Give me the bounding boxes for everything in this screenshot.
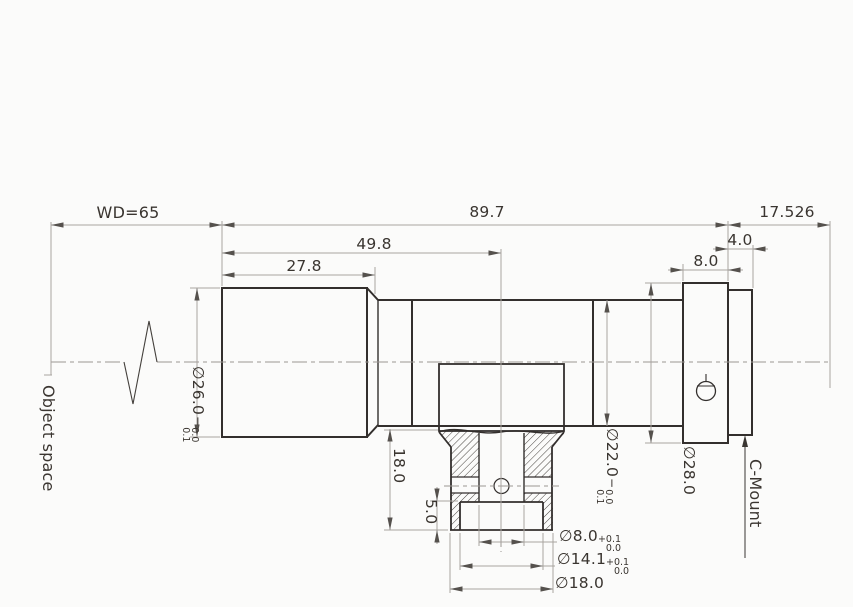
- dim-label-dia18: ∅18.0: [555, 574, 604, 592]
- dia141-base: ∅14.1: [557, 550, 606, 568]
- dia18-base: ∅18.0: [555, 574, 604, 592]
- c-mount-label: C-Mount: [746, 459, 765, 528]
- leader-arrow-icon: [742, 435, 748, 447]
- dim-label-17-526: 17.526: [759, 203, 814, 221]
- dia26-base: ∅26.0: [189, 366, 207, 415]
- dia22-sign: −: [605, 478, 619, 488]
- dim-label-wd: WD=65: [97, 203, 160, 222]
- dim-label-8-0: 8.0: [693, 252, 718, 270]
- dia141-lower-tol: 0.0: [614, 567, 629, 576]
- technical-drawing-canvas: WD=65 89.7 17.526 49.8 27.8 8.0 4.0 ∅8.0…: [0, 0, 853, 607]
- main-tube: [378, 300, 683, 426]
- dim-label-dia26: ∅26.0−0.00.1: [181, 366, 207, 442]
- dim-label-49-8: 49.8: [356, 235, 391, 253]
- dia22-base: ∅22.0: [603, 428, 621, 477]
- rear-ring: [683, 283, 728, 443]
- dia26-upper-tol: 0.0: [190, 427, 199, 442]
- axis-break-zigzag: [124, 321, 157, 404]
- dia22-upper-tol: 0.0: [604, 489, 613, 504]
- lens-outline: [222, 283, 752, 443]
- dia28-base: ∅28.0: [680, 446, 698, 495]
- dim-label-89-7: 89.7: [469, 203, 504, 221]
- dim-label-dia28: ∅28.0: [680, 446, 698, 495]
- dim-label-18-0: 18.0: [390, 448, 408, 483]
- dia26-sign: −: [191, 416, 205, 426]
- dim-label-5-0: 5.0: [422, 499, 440, 524]
- dia8-base: ∅8.0: [559, 527, 598, 545]
- object-space-label: Object space: [39, 385, 58, 492]
- dia22-lower-tol: 0.1: [595, 489, 604, 504]
- dia26-lower-tol: 0.1: [181, 427, 190, 442]
- dim-label-dia14-1: ∅14.1+0.10.0: [557, 550, 629, 576]
- dim-label-27-8: 27.8: [286, 257, 321, 275]
- dim-label-dia22: ∅22.0−0.00.1: [595, 428, 621, 504]
- dim-label-4-0: 4.0: [727, 231, 752, 249]
